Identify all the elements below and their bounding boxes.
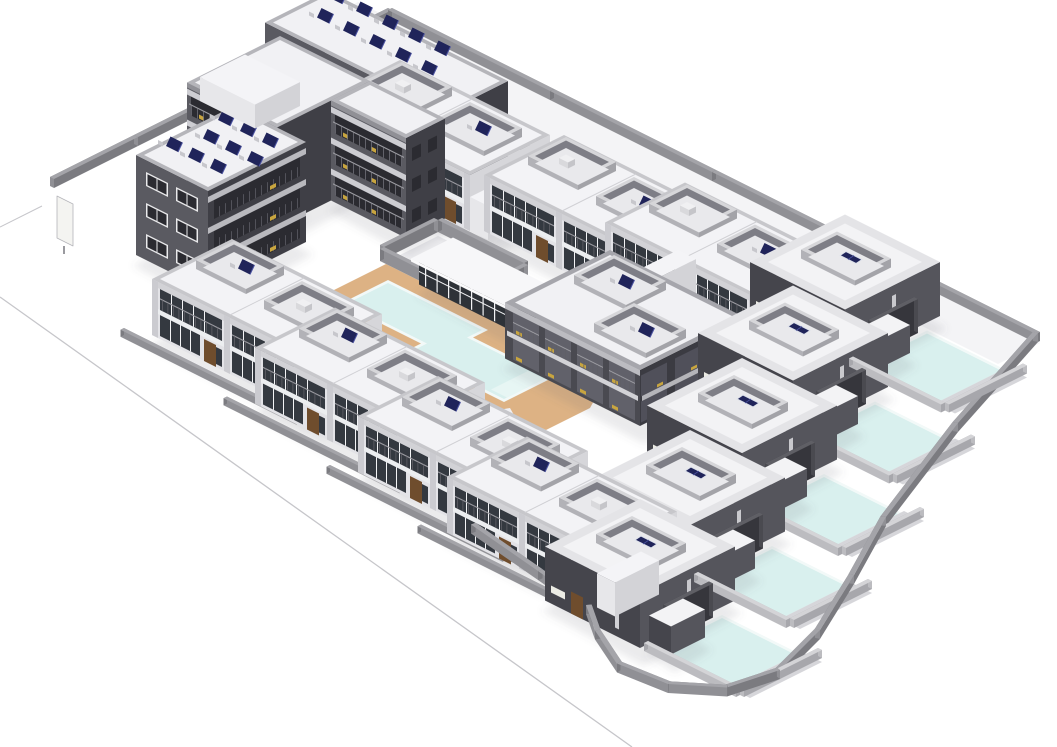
viewport bbox=[0, 0, 1057, 747]
boundary-nw-seg bbox=[50, 135, 138, 188]
boundary-s-curve-seg bbox=[617, 661, 672, 693]
entrance-sign bbox=[57, 196, 73, 254]
site-3d-rendering bbox=[0, 0, 1057, 747]
